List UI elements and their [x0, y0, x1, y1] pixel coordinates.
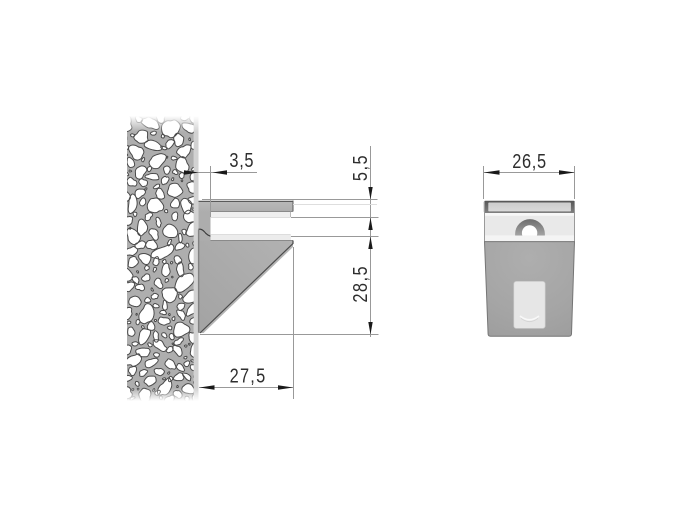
- svg-text:28,5: 28,5: [349, 265, 372, 303]
- svg-text:26,5: 26,5: [512, 149, 547, 172]
- svg-text:5,5: 5,5: [349, 154, 372, 181]
- svg-text:27,5: 27,5: [230, 364, 267, 387]
- svg-text:3,5: 3,5: [229, 149, 254, 172]
